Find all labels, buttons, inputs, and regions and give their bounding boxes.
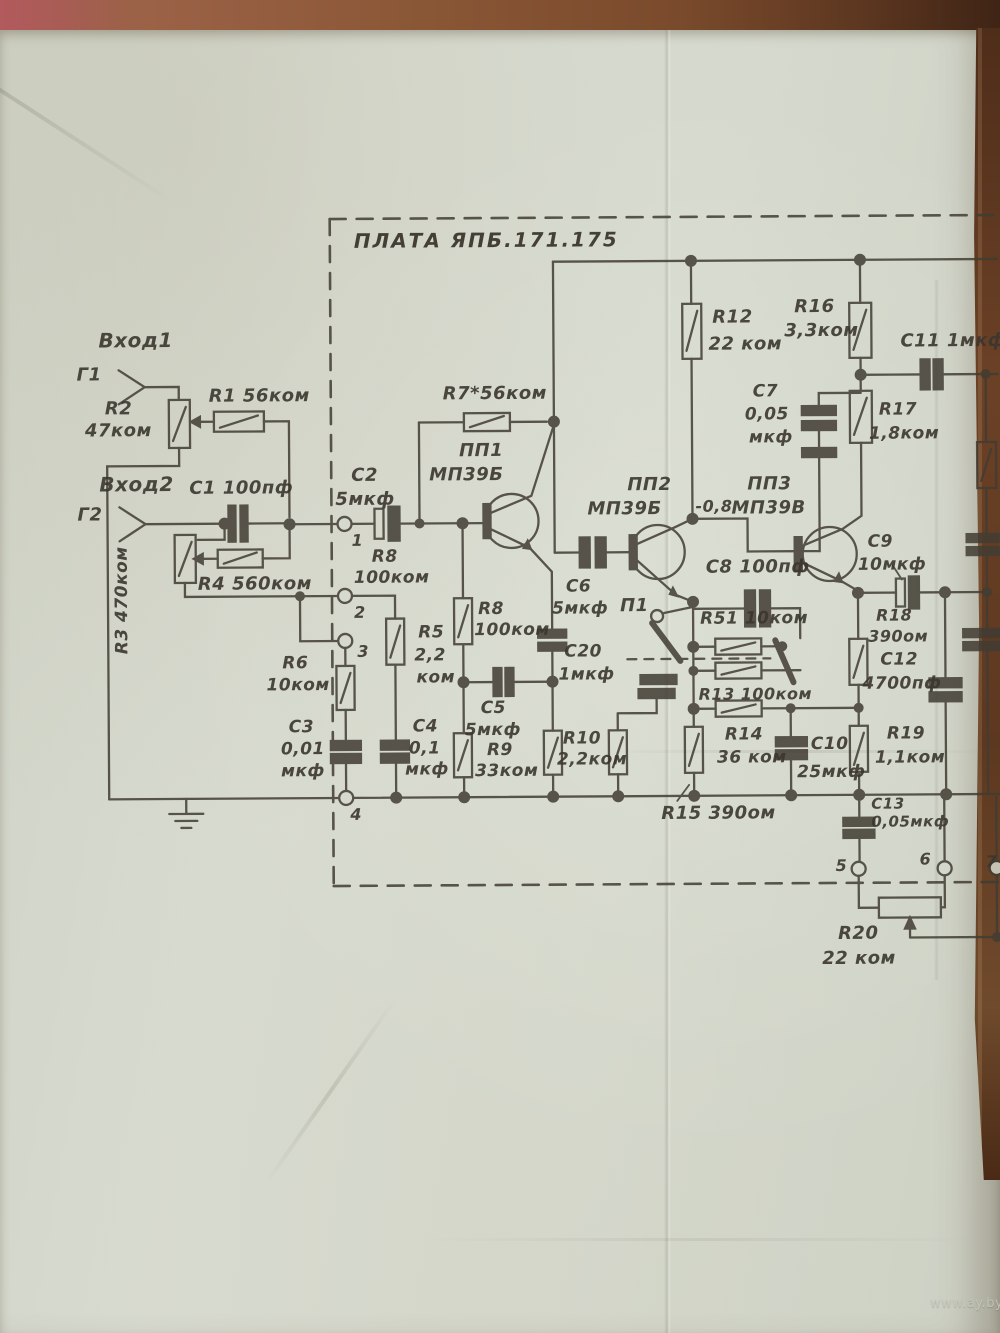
ground-icon: [169, 799, 203, 828]
schematic: ПЛАТА ЯПБ.171.175 Вход1Г1R247комR1 56ком…: [0, 0, 1000, 1333]
schematic-label: R20: [838, 923, 879, 944]
schematic-label: R18: [876, 605, 912, 624]
schematic-label: 100ком: [474, 620, 550, 640]
schematic-label: С1 100пф: [189, 477, 293, 499]
schematic-label: 5мкф: [552, 598, 608, 618]
schematic-label: С20: [564, 641, 602, 661]
transistor-pp2-symbol: [630, 519, 694, 602]
schematic-label: 0,05мкф: [871, 812, 949, 830]
schematic-label: 5мкф: [465, 720, 521, 740]
schematic-label: R51 10ком: [700, 608, 808, 629]
schematic-label: МП39Б: [587, 498, 661, 519]
watermark: www.ay.by: [930, 1296, 1000, 1311]
schematic-label: мкф: [281, 761, 325, 781]
schematic-label: R13 100ком: [699, 684, 813, 704]
circuit-drawing: [0, 0, 1000, 1333]
schematic-label: П1: [620, 595, 649, 616]
schematic-label: Вход1: [98, 328, 173, 352]
schematic-label: ПП1: [459, 440, 503, 461]
schematic-label: С10: [811, 734, 849, 754]
schematic-label: R6: [282, 653, 308, 673]
schematic-label: 7: [986, 852, 998, 871]
schematic-label: С4: [413, 716, 438, 736]
schematic-label: R1 56ком: [209, 385, 310, 407]
schematic-label: Вход2: [99, 472, 174, 496]
schematic-label: мкф: [405, 759, 449, 779]
schematic-label: R2: [105, 398, 133, 419]
right-edge-column: [962, 374, 1000, 794]
schematic-label: ПП2: [627, 474, 671, 495]
schematic-label: 0,1: [409, 738, 441, 758]
schematic-label: R3 470ком: [112, 546, 133, 654]
schematic-label: Г1: [77, 364, 102, 385]
schematic-label: С13: [871, 795, 905, 813]
schematic-label: Г2: [77, 504, 102, 525]
schematic-label: -0,8: [695, 497, 732, 516]
schematic-label: ПП3: [747, 473, 791, 494]
schematic-label: 2,2ком: [557, 749, 627, 769]
schematic-label: 2,2: [414, 645, 446, 665]
schematic-label: 1,1ком: [875, 747, 945, 767]
schematic-label: МП39Б: [429, 464, 503, 485]
schematic-label: 10ком: [266, 675, 329, 695]
schematic-label: 100ком: [354, 567, 430, 587]
schematic-label: 2: [354, 603, 366, 622]
schematic-label: С6: [566, 576, 591, 596]
schematic-label: 3,3ком: [784, 320, 858, 341]
schematic-label: С9: [868, 532, 893, 552]
schematic-label: 25мкф: [797, 762, 866, 782]
schematic-label: 4700пф: [862, 673, 941, 693]
schematic-label: мкф: [749, 427, 793, 447]
input-g2-icon: [119, 507, 224, 542]
schematic-label: R4 560ком: [198, 573, 312, 595]
schematic-label: 5мкф: [335, 489, 394, 510]
feedback-network: [802, 359, 1000, 551]
schematic-label: R8: [478, 599, 504, 619]
schematic-label: 47ком: [85, 420, 152, 441]
schematic-label: R5: [418, 622, 444, 642]
schematic-label: 10мкф: [858, 554, 927, 574]
pp2-pp3-link: [693, 518, 795, 552]
schematic-label: С11 1мкф: [900, 330, 1000, 352]
photo-of-schematic: ПЛАТА ЯПБ.171.175 Вход1Г1R247комR1 56ком…: [0, 0, 1000, 1333]
schematic-label: 33ком: [475, 761, 538, 781]
schematic-label: R9: [487, 740, 513, 760]
schematic-label: С5: [481, 698, 506, 718]
schematic-label: 6: [920, 849, 932, 868]
schematic-label: С3: [289, 717, 314, 737]
schematic-label: R17: [879, 399, 917, 419]
schematic-label: 390ом: [868, 626, 928, 645]
schematic-label: 36 ком: [717, 747, 787, 767]
schematic-label: R8: [372, 547, 398, 567]
schematic-label: 4: [350, 805, 362, 824]
schematic-label: R14: [725, 724, 763, 744]
schematic-label: 1: [352, 531, 364, 550]
board-title: ПЛАТА ЯПБ.171.175: [354, 227, 619, 253]
schematic-label: С8 100пф: [706, 556, 810, 578]
schematic-label: ком: [416, 667, 455, 687]
schematic-label: 0,05: [745, 404, 789, 424]
schematic-label: R12: [712, 306, 753, 327]
schematic-label: МП39В: [731, 497, 805, 518]
schematic-label: R10: [563, 728, 601, 748]
schematic-label: R16: [794, 296, 835, 317]
schematic-label: С2: [351, 465, 378, 486]
schematic-label: R15 390ом: [661, 802, 775, 824]
schematic-label: 1,8ком: [869, 423, 939, 443]
schematic-label: 22 ком: [822, 948, 896, 969]
schematic-label: 22 ком: [708, 333, 782, 354]
schematic-label: R7*56ком: [443, 383, 547, 405]
schematic-label: 0,01: [281, 739, 325, 759]
schematic-label: 3: [357, 642, 369, 661]
schematic-label: С12: [880, 649, 918, 669]
schematic-label: 1мкф: [558, 664, 614, 684]
schematic-label: R19: [887, 723, 925, 743]
schematic-label: С7: [753, 381, 778, 401]
board-outline: [330, 215, 1000, 886]
schematic-label: 5: [836, 856, 848, 875]
